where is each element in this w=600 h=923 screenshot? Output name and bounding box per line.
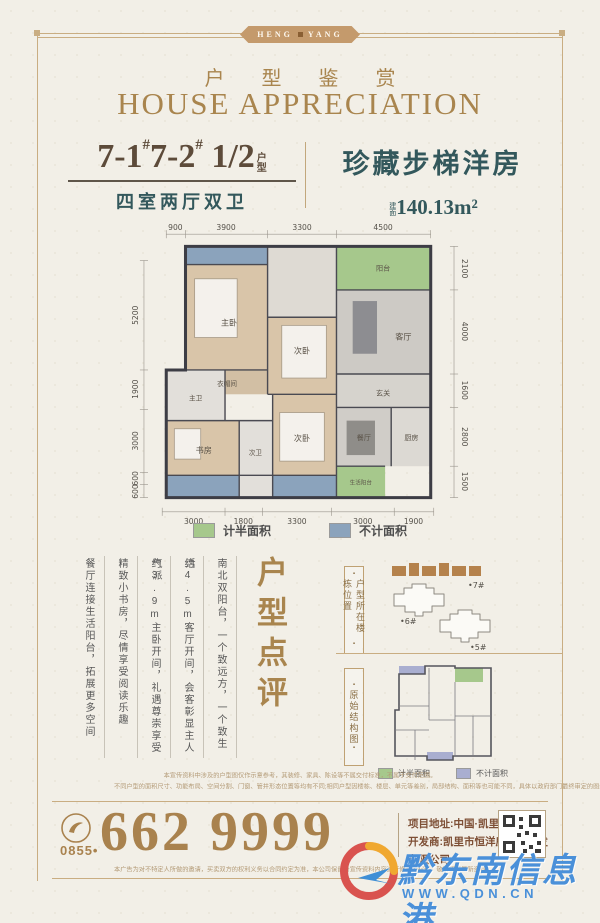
unit-fraction: 1/2 xyxy=(211,138,254,175)
unit-header-right: 珍藏步梯洋房 建面140.13m² xyxy=(320,142,545,220)
label-master: 主卧 xyxy=(221,317,237,327)
structure-diagram-label: ▪ 原始结构图 ▪ xyxy=(344,668,364,766)
bullet-icon: ▪ xyxy=(351,682,357,690)
mini-balcony-green xyxy=(455,668,483,682)
building-label: •5# xyxy=(470,643,487,652)
building-row-icon xyxy=(392,563,481,576)
label-closet: 衣帽间 xyxy=(217,379,237,388)
building-label: •7# xyxy=(468,581,485,590)
unit-header-left: 7-1#7-2# 1/2户型 四室两厅双卫 xyxy=(62,138,302,214)
disclaimer-line2: 不同户型的面积尺寸、功能布局、空间分割、门窗、管井形态位置等均有不同;相同户型因… xyxy=(114,781,486,790)
label-bath-master: 主卫 xyxy=(189,393,203,402)
flyer-page: HENG YANG 户 型 鉴 赏 HOUSE APPRECIATION 7-1… xyxy=(0,0,600,923)
building-label: •6# xyxy=(400,617,417,626)
label-foyer: 玄关 xyxy=(376,388,390,397)
mini-balcony-bottom xyxy=(427,752,453,760)
dim-label: 900 xyxy=(168,223,183,232)
room-living xyxy=(336,290,430,374)
dim-label: 4500 xyxy=(373,223,392,232)
dim-label: 3300 xyxy=(292,223,311,232)
frame-left-line xyxy=(37,33,38,881)
balcony-bottom-left-blue xyxy=(166,475,239,497)
label-balcony: 阳台 xyxy=(376,264,390,273)
label-dining: 餐厅 xyxy=(357,433,371,442)
unit-number-a: 7-1 xyxy=(97,138,142,175)
label-bath2: 次卫 xyxy=(249,448,263,457)
room-bath-corridor xyxy=(268,246,337,317)
half-area-label: 计半面积 xyxy=(223,522,271,539)
developer-logo-icon xyxy=(60,812,92,844)
watermark-site-url[interactable]: WWW.QDN.CN xyxy=(402,886,538,901)
room-bath2 xyxy=(239,421,272,498)
area-value: 140.13m² xyxy=(396,195,478,219)
excluded-area-swatch xyxy=(329,523,351,538)
balcony-top-blue xyxy=(186,246,268,264)
review-section: 户型点评 南北双阳台，一个致远方，一个致生活 约4.5m客厅开间，会客彰显主人气… xyxy=(72,556,296,764)
unit-suffix-stack: 户型 xyxy=(257,154,267,174)
label-kitchen: 厨房 xyxy=(404,433,418,442)
location-label-text: 户型所在楼栋位置 xyxy=(341,579,367,641)
dim-label: 3000 xyxy=(131,431,140,450)
header-divider xyxy=(305,142,306,208)
frame-corner-ornament xyxy=(559,30,565,36)
review-column: 约3.9m主卧开间，礼遇尊崇享受 xyxy=(138,556,171,758)
location-diagram-label: ▪ 户型所在楼栋位置 ▪ xyxy=(344,566,364,654)
floor-plan: 主卧 衣帽间 次卧 主卫 书房 次卫 次卧 阳台 客厅 玄关 餐厅 厨房 生活阳… xyxy=(110,220,490,526)
brand-name-right: YANG xyxy=(308,30,343,39)
legend-excluded-area: 不计面积 xyxy=(329,522,407,539)
unit-number-b: 7-2 xyxy=(150,138,195,175)
watermark-logo-icon xyxy=(338,840,400,902)
dim-label: 4000 xyxy=(460,322,469,341)
bullet-icon: ▪ xyxy=(351,641,357,649)
watermark-site-name: 黔东南信息港 xyxy=(398,843,600,923)
frame-corner-ornament xyxy=(34,30,40,36)
disclaimer-line1: 本宣传资料中涉及的户型图仅作示意参考，其装修、家具、陈设等不属交付标准，不属于交… xyxy=(114,770,486,779)
dim-label: 1900 xyxy=(131,379,140,398)
dim-label: 3900 xyxy=(216,223,235,232)
review-column: 精致小书房，尽情享受阅读乐趣 xyxy=(105,556,138,758)
dim-label: 1500 xyxy=(460,472,469,491)
dim-label: 600 xyxy=(131,471,140,486)
review-column: 南北双阳台，一个致远方，一个致生活 xyxy=(204,556,237,758)
dim-label: 2100 xyxy=(460,259,469,278)
bullet-icon: ▪ xyxy=(351,745,357,753)
mini-balcony-top xyxy=(399,666,425,674)
review-column: 约4.5m客厅开间，会客彰显主人气派 xyxy=(171,556,204,758)
sofa-living xyxy=(353,301,377,354)
label-study: 书房 xyxy=(196,445,212,455)
frame-right-line xyxy=(562,33,563,881)
plan-legend: 计半面积 不计面积 xyxy=(0,522,600,539)
unit-layout: 四室两厅双卫 xyxy=(62,188,302,214)
balcony-bottom-mid-blue xyxy=(273,475,337,497)
unit-number: 7-1#7-2# 1/2户型 xyxy=(62,138,302,174)
excluded-area-label: 不计面积 xyxy=(359,522,407,539)
unit-type-name: 珍藏步梯洋房 xyxy=(320,142,545,181)
label-bedroom2: 次卧 xyxy=(294,346,310,356)
dim-label: 5200 xyxy=(131,305,140,324)
bed-master xyxy=(195,279,238,338)
hash-sup: # xyxy=(195,137,203,153)
brand-ribbon: HENG YANG xyxy=(240,26,360,43)
unit-area: 建面140.13m² xyxy=(320,195,545,220)
dim-label: 2800 xyxy=(460,427,469,446)
label-bedroom3: 次卧 xyxy=(294,433,310,443)
building-footprints xyxy=(394,584,490,642)
suffix-bottom: 型 xyxy=(257,164,267,174)
unit-underline xyxy=(68,180,296,182)
bullet-icon: ▪ xyxy=(351,571,357,579)
page-title-en: HOUSE APPRECIATION xyxy=(0,86,600,122)
building-location-diagram: •7# •6# •5# xyxy=(372,558,522,653)
structure-mini-plan xyxy=(385,660,505,764)
review-title: 户型点评 xyxy=(237,556,296,756)
half-area-swatch xyxy=(193,523,215,538)
legend-half-area: 计半面积 xyxy=(193,522,271,539)
review-column: 餐厅连接生活阳台，拓展更多空间 xyxy=(72,556,105,758)
label-living: 客厅 xyxy=(395,332,411,342)
diagram-divider xyxy=(336,653,562,654)
brand-name-left: HENG xyxy=(257,30,293,39)
ribbon-square-icon xyxy=(298,32,303,37)
structure-label-text: 原始结构图 xyxy=(348,690,361,745)
dim-label: 1600 xyxy=(460,381,469,400)
phone-area-code: 0855• xyxy=(60,843,98,858)
hash-sup: # xyxy=(143,137,151,153)
phone-number[interactable]: 662 9999 xyxy=(100,804,334,860)
label-life-balcony: 生活阳台 xyxy=(350,478,373,486)
dim-label: 600 xyxy=(131,484,140,499)
